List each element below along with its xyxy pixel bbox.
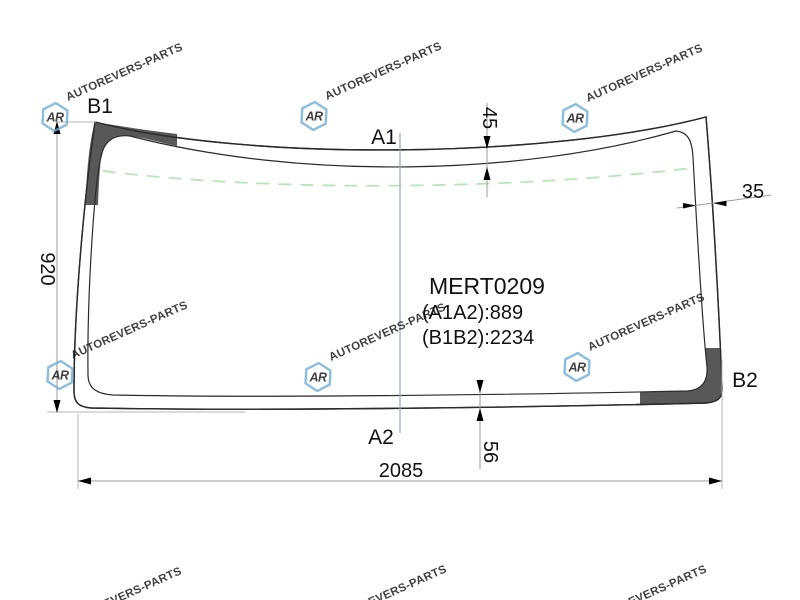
svg-text:AR: AR [308,371,327,385]
svg-text:AR: AR [50,369,69,383]
height-arrow-down [54,400,61,413]
svg-text:AR: AR [304,110,323,124]
width-dim-value: 2085 [379,460,424,482]
bottom-offset-arrow-up [477,408,484,421]
side-offset-value: 35 [742,181,764,203]
watermark: AR AUTOREVERS-PARTS [559,42,705,134]
ar-logo-icon: AR [298,100,330,132]
ar-logo-icon: AR [44,359,76,391]
width-arrow-right [709,478,722,485]
brand-watermark-text: AUTOREVERS-PARTS [64,41,184,103]
brand-watermark-text: AUTOREVERS-PARTS [63,565,183,600]
bottom-offset-value: 56 [479,441,501,463]
watermark: AR AUTOREVERS-PARTS [39,41,185,133]
watermark: AR AUTOREVERS-PARTS [303,563,449,600]
brand-watermark-text: AUTOREVERS-PARTS [588,563,708,600]
top-offset-value: 45 [478,107,500,129]
windshield-outer-outline [74,117,722,409]
svg-text:AR: AR [45,111,64,125]
measure-b1b2: (B1B2):2234 [422,327,534,349]
label-b1: B1 [87,95,113,118]
side-offset-arrow-left [714,201,727,207]
windshield-diagram: 920 2085 45 56 35 B1 A1 B2 A2 MERT0209 (… [0,0,800,600]
label-b2: B2 [732,369,758,392]
part-code: MERT0209 [429,273,545,299]
label-a1: A1 [371,126,397,149]
watermark: AR AUTOREVERS-PARTS [563,563,709,600]
watermark: AR AUTOREVERS-PARTS [298,40,444,132]
height-dim-value: 920 [36,252,58,285]
svg-text:AR: AR [565,112,584,126]
width-arrow-left [78,478,91,485]
brand-watermark-text: AUTOREVERS-PARTS [328,563,448,600]
brand-watermark-text: AUTOREVERS-PARTS [323,40,443,102]
diagram-canvas: 920 2085 45 56 35 B1 A1 B2 A2 MERT0209 (… [0,0,800,600]
ar-logo-icon: AR [39,101,71,133]
watermark: AR AUTOREVERS-PARTS [38,565,184,600]
svg-text:AR: AR [567,361,586,375]
label-a2: A2 [368,426,394,449]
brand-watermark-text: AUTOREVERS-PARTS [584,42,704,104]
ar-logo-icon: AR [559,102,591,134]
